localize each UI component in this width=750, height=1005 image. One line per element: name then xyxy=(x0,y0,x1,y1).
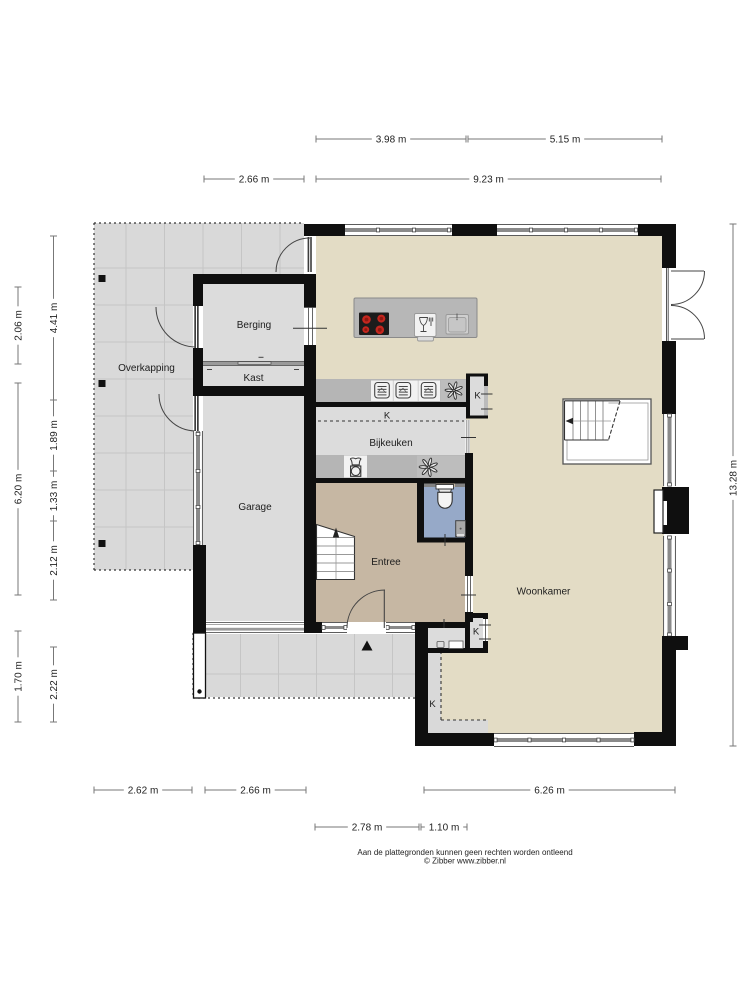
svg-text:K: K xyxy=(384,411,391,422)
svg-text:Berging: Berging xyxy=(237,320,271,331)
svg-text:© Zibber www.zibber.nl: © Zibber www.zibber.nl xyxy=(424,857,506,866)
svg-text:1.33 m: 1.33 m xyxy=(49,481,60,512)
svg-text:9.23 m: 9.23 m xyxy=(473,175,504,186)
svg-text:K: K xyxy=(474,391,481,402)
svg-text:6.20 m: 6.20 m xyxy=(14,474,25,505)
svg-text:1.89 m: 1.89 m xyxy=(49,420,60,451)
svg-text:6.26 m: 6.26 m xyxy=(534,786,565,797)
svg-text:K: K xyxy=(473,627,480,638)
svg-text:2.12 m: 2.12 m xyxy=(49,545,60,576)
svg-text:1.10 m: 1.10 m xyxy=(429,823,460,834)
svg-text:Woonkamer: Woonkamer xyxy=(517,587,571,598)
svg-text:5.15 m: 5.15 m xyxy=(550,135,581,146)
svg-text:4.41 m: 4.41 m xyxy=(49,303,60,334)
svg-text:2.66 m: 2.66 m xyxy=(240,786,271,797)
svg-text:Bijkeuken: Bijkeuken xyxy=(369,438,412,449)
svg-text:13.28 m: 13.28 m xyxy=(729,460,740,496)
svg-text:2.62 m: 2.62 m xyxy=(128,786,159,797)
svg-text:Kast: Kast xyxy=(243,373,263,384)
svg-text:Overkapping: Overkapping xyxy=(118,363,175,374)
svg-text:2.06 m: 2.06 m xyxy=(14,310,25,341)
svg-text:2.66 m: 2.66 m xyxy=(239,175,270,186)
svg-text:1.70 m: 1.70 m xyxy=(14,661,25,692)
svg-text:Garage: Garage xyxy=(238,502,272,513)
svg-text:2.78 m: 2.78 m xyxy=(352,823,383,834)
svg-text:2.22 m: 2.22 m xyxy=(49,669,60,700)
svg-text:3.98 m: 3.98 m xyxy=(376,135,407,146)
svg-text:Entree: Entree xyxy=(371,557,401,568)
svg-text:K: K xyxy=(429,699,436,710)
